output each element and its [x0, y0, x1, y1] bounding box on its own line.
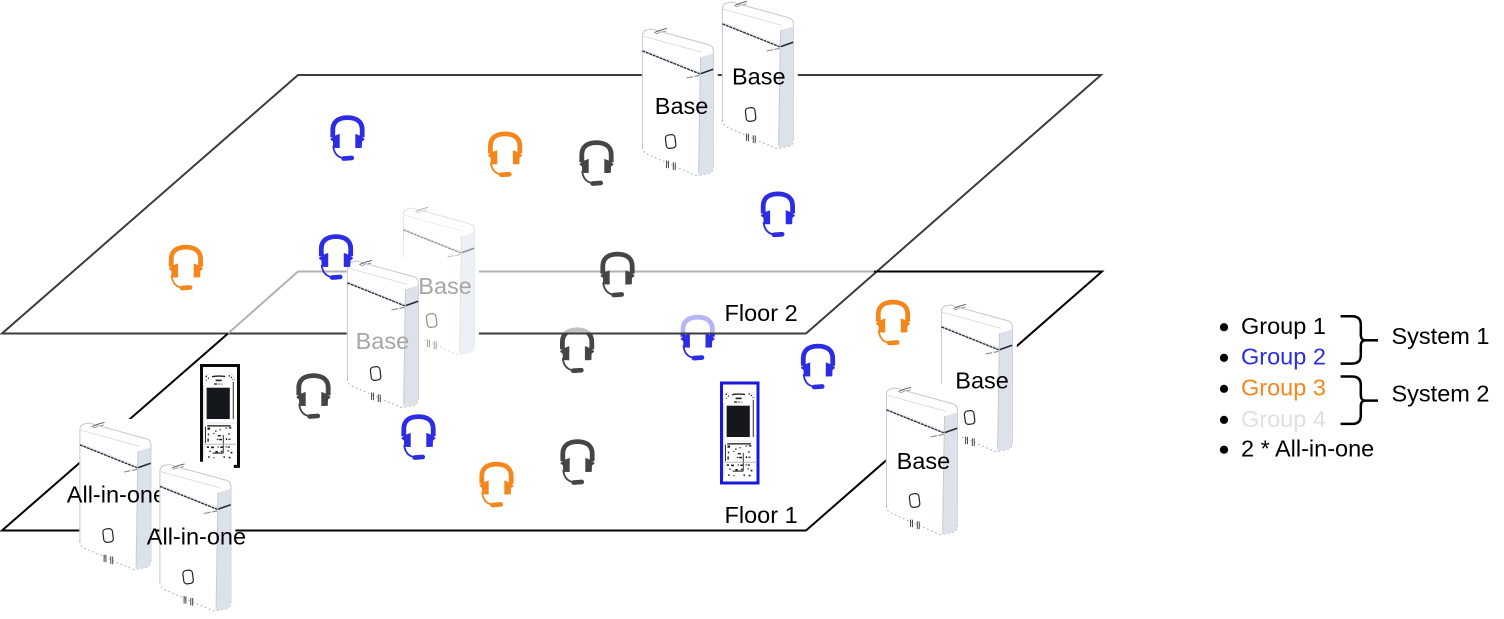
svg-text:Base: Base: [356, 328, 410, 354]
svg-text:Base: Base: [955, 368, 1009, 394]
svg-text:System 2: System 2: [1392, 380, 1490, 406]
svg-text:Base: Base: [732, 64, 786, 90]
svg-text:Group 3: Group 3: [1241, 375, 1326, 401]
svg-text:Group 2: Group 2: [1241, 344, 1326, 370]
svg-text:Floor 2: Floor 2: [725, 300, 798, 326]
svg-text:Group 1: Group 1: [1241, 313, 1326, 339]
svg-text:System 1: System 1: [1392, 323, 1490, 349]
svg-text:Floor 1: Floor 1: [725, 502, 798, 528]
svg-text:Base: Base: [655, 93, 709, 119]
svg-text:Group 4: Group 4: [1241, 406, 1326, 432]
svg-text:All-in-one: All-in-one: [147, 524, 246, 550]
svg-text:2 * All-in-one: 2 * All-in-one: [1241, 436, 1374, 462]
svg-text:Base: Base: [897, 448, 951, 474]
svg-text:Base: Base: [418, 273, 472, 299]
svg-text:All-in-one: All-in-one: [67, 482, 166, 508]
